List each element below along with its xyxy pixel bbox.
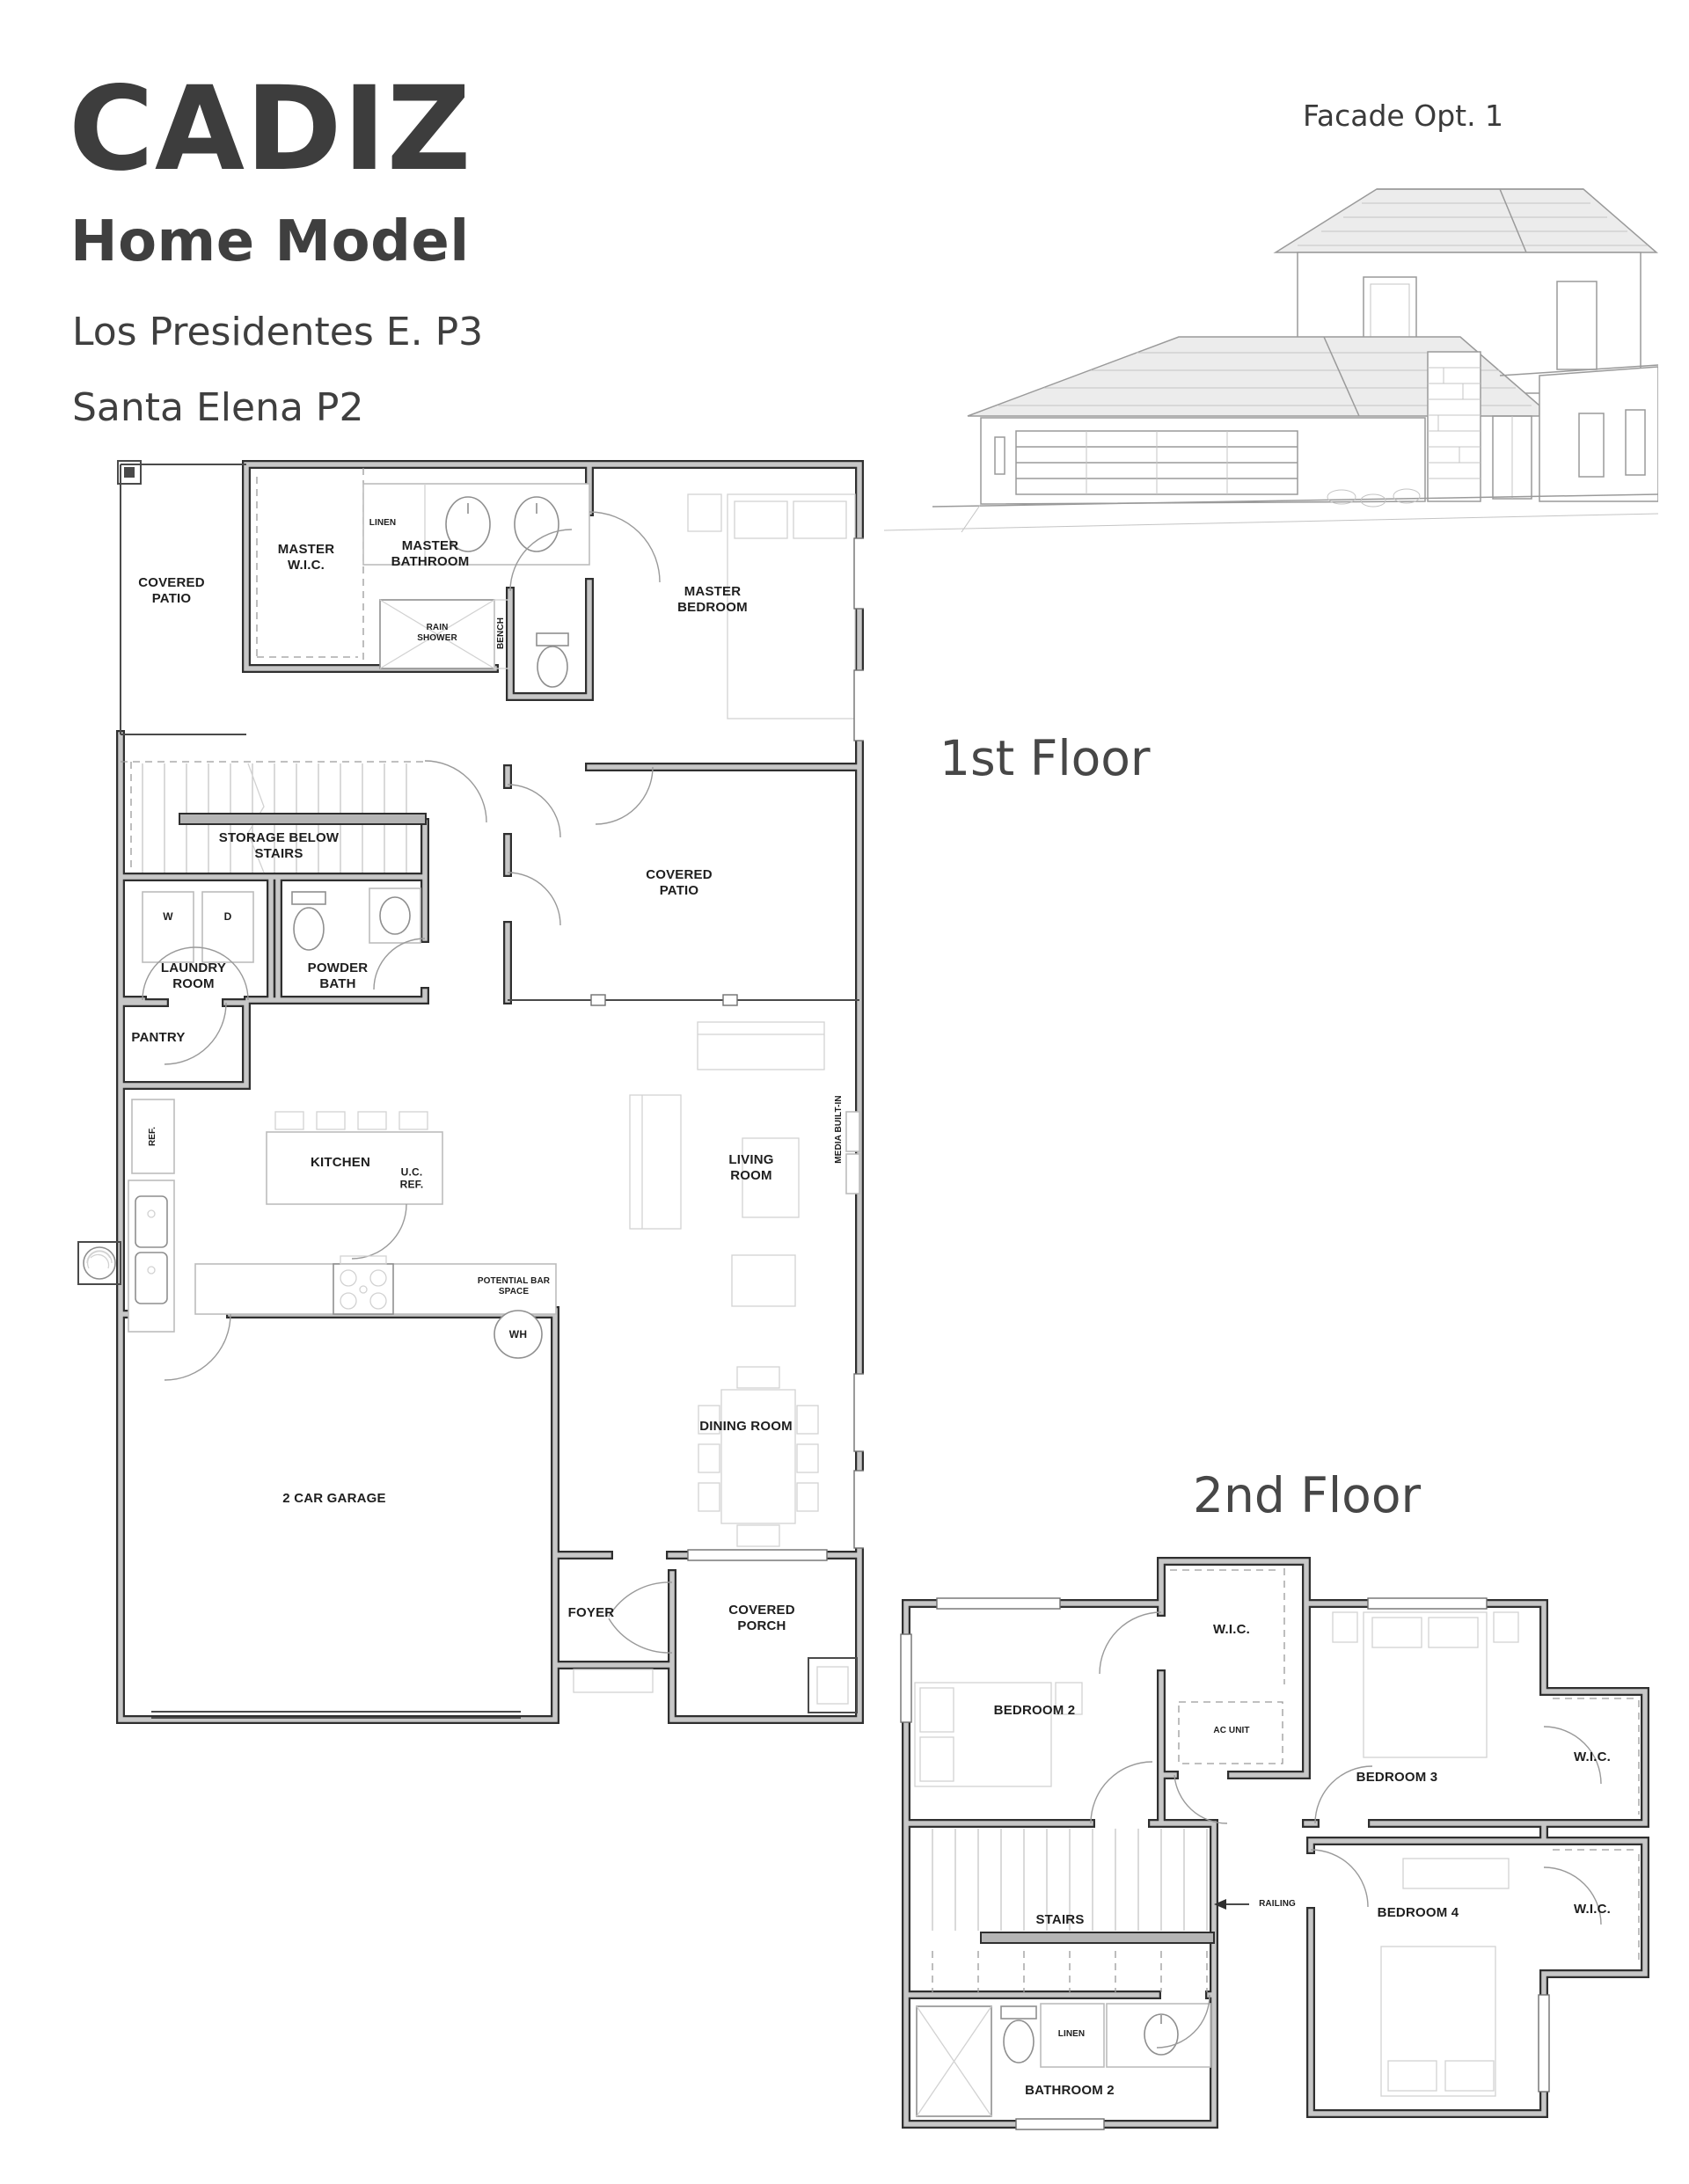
room-label-railing: RAILING [1259,1899,1296,1910]
community-line-1: Los Presidentes E. P3 [72,310,483,354]
room-label-storage-below-stairs: STORAGE BELOW STAIRS [213,830,345,862]
room-label-ref: REF. [148,1127,158,1146]
room-label-powder-bath: POWDER BATH [307,961,369,992]
floor1-plan: COVERED PATIO MASTER W.I.C. MASTER BATHR… [116,459,864,1739]
room-label-kitchen: KITCHEN [311,1155,370,1171]
page-title: CADIZ [69,62,472,197]
room-label-potential-bar-space: POTENTIAL BAR SPACE [474,1276,553,1297]
facade-rendering [884,154,1658,537]
floor2-drawing [897,1551,1654,2140]
room-label-dining-room: DINING ROOM [699,1419,793,1435]
floor1-heading: 1st Floor [940,730,1151,786]
room-label-master-bedroom: MASTER BEDROOM [669,584,757,616]
room-label-pantry: PANTRY [131,1030,185,1046]
room-label-wic-bottom: W.I.C. [1574,1902,1611,1917]
room-label-covered-patio-left: COVERED PATIO [135,575,208,607]
room-label-bench: BENCH [496,617,507,649]
facade-option-label: Facade Opt. 1 [1267,99,1539,133]
room-label-wic-top: W.I.C. [1213,1622,1250,1638]
room-label-water-heater: WH [509,1328,527,1340]
room-label-stairs: STAIRS [1035,1912,1084,1928]
room-label-master-bathroom: MASTER BATHROOM [386,538,474,570]
floor2-heading: 2nd Floor [1193,1467,1421,1523]
room-label-linen: LINEN [369,518,397,529]
room-label-wic-right: W.I.C. [1574,1749,1611,1765]
room-label-linen-2: LINEN [1058,2029,1086,2040]
room-label-covered-porch: COVERED PORCH [724,1603,800,1634]
room-label-media-built-in: MEDIA BUILT-IN [834,1095,844,1164]
room-label-living-room: LIVING ROOM [723,1152,779,1184]
room-label-ac-unit: AC UNIT [1213,1726,1249,1736]
room-label-rain-shower: RAIN SHOWER [415,623,459,644]
room-label-garage: 2 CAR GARAGE [282,1491,385,1507]
room-label-bedroom-2: BEDROOM 2 [994,1703,1076,1719]
page-subtitle: Home Model [70,209,470,274]
floor1-drawing [116,459,864,1739]
plan-sheet: CADIZ Home Model Los Presidentes E. P3 S… [0,0,1689,2184]
room-label-bathroom-2: BATHROOM 2 [1025,2083,1115,2099]
room-label-covered-patio-right: COVERED PATIO [643,867,715,899]
room-label-dryer: D [224,910,232,923]
room-label-bedroom-3: BEDROOM 3 [1356,1770,1438,1786]
site-symbol [75,1238,124,1288]
room-label-master-wic: MASTER W.I.C. [273,542,340,573]
room-label-washer: W [163,910,173,923]
community-line-2: Santa Elena P2 [72,385,363,430]
room-label-uc-ref: U.C. REF. [392,1166,431,1192]
room-label-foyer: FOYER [568,1605,615,1621]
room-label-laundry-room: LAUNDRY ROOM [158,961,229,992]
room-label-bedroom-4: BEDROOM 4 [1378,1905,1459,1921]
floor2-plan: W.I.C. BEDROOM 2 AC UNIT BEDROOM 3 W.I.C… [897,1551,1654,2140]
